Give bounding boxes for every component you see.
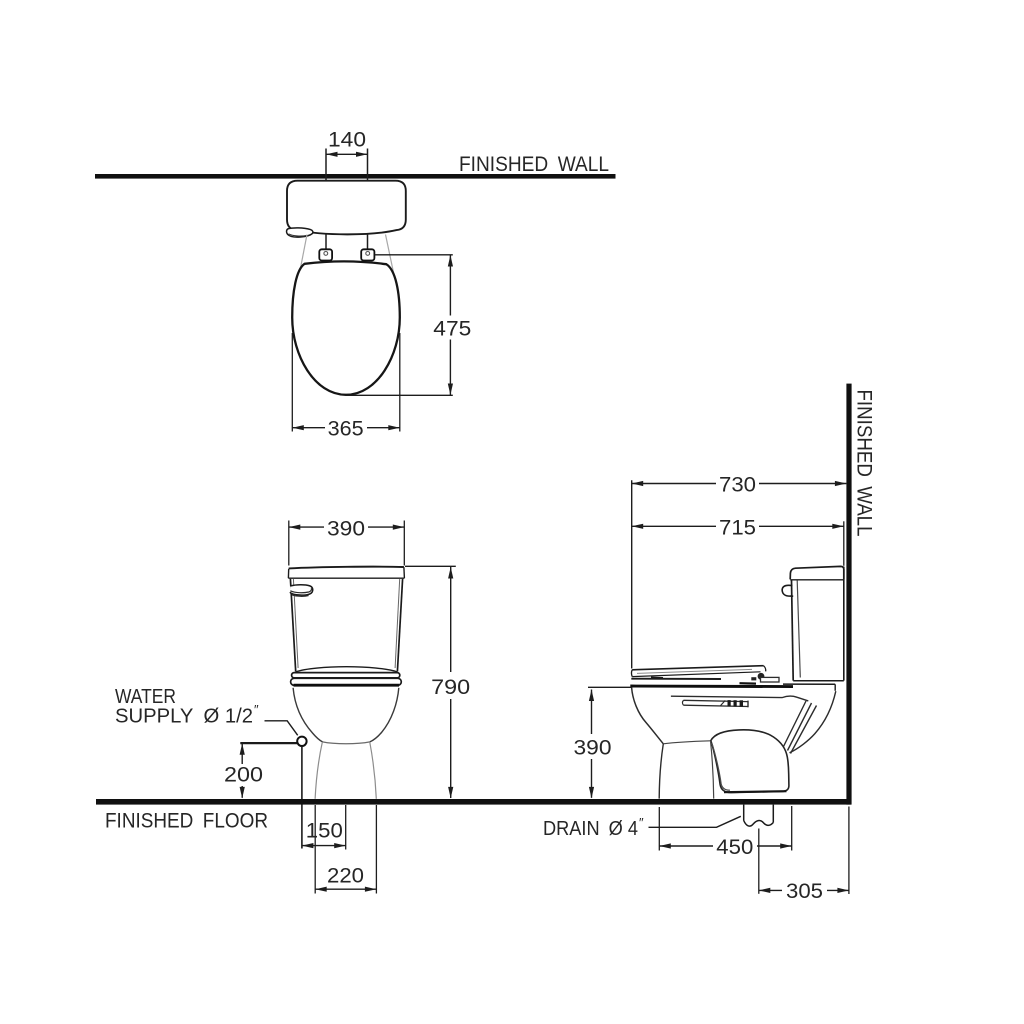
svg-text:220: 220 (327, 865, 364, 888)
svg-text:″: ″ (639, 815, 644, 830)
svg-text:″: ″ (254, 702, 259, 717)
svg-text:FINISHED WALL: FINISHED WALL (459, 153, 609, 176)
svg-text:150: 150 (306, 820, 343, 843)
svg-text:390: 390 (327, 517, 365, 540)
svg-text:450: 450 (716, 836, 753, 859)
svg-text:DRAIN Ø 4: DRAIN Ø 4 (543, 817, 638, 840)
svg-text:FINISHED WALL: FINISHED WALL (853, 390, 876, 537)
svg-text:365: 365 (328, 418, 364, 441)
svg-text:305: 305 (786, 880, 823, 903)
svg-text:475: 475 (433, 318, 471, 341)
svg-text:200: 200 (224, 764, 263, 787)
svg-text:390: 390 (574, 736, 612, 759)
svg-text:FINISHED FLOOR: FINISHED FLOOR (105, 810, 268, 833)
svg-text:SUPPLY Ø 1/2: SUPPLY Ø 1/2 (115, 705, 253, 728)
svg-text:715: 715 (719, 516, 756, 539)
svg-text:790: 790 (431, 676, 470, 699)
svg-text:140: 140 (328, 129, 366, 152)
svg-text:730: 730 (719, 474, 756, 497)
